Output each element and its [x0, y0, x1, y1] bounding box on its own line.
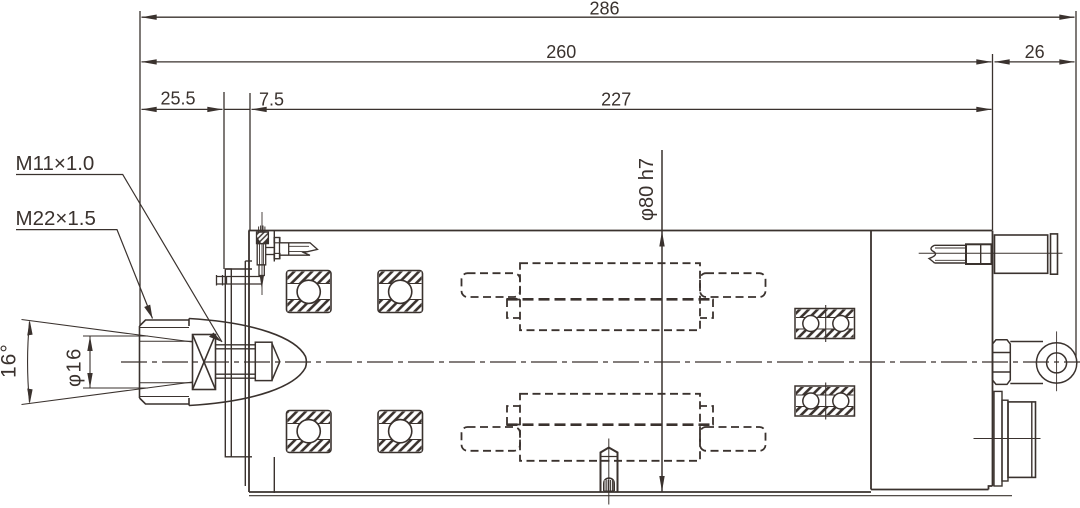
svg-text:φ16: φ16	[64, 347, 86, 387]
svg-text:260: 260	[546, 42, 576, 62]
svg-text:M22×1.5: M22×1.5	[16, 207, 96, 230]
svg-text:26: 26	[1025, 42, 1045, 62]
svg-text:M11×1.0: M11×1.0	[16, 152, 95, 175]
svg-text:16°: 16°	[0, 343, 21, 378]
svg-text:25.5: 25.5	[160, 89, 195, 109]
svg-text:286: 286	[589, 0, 619, 18]
svg-text:227: 227	[601, 89, 631, 109]
svg-text:φ80 h7: φ80 h7	[636, 158, 658, 221]
svg-text:7.5: 7.5	[259, 90, 284, 110]
